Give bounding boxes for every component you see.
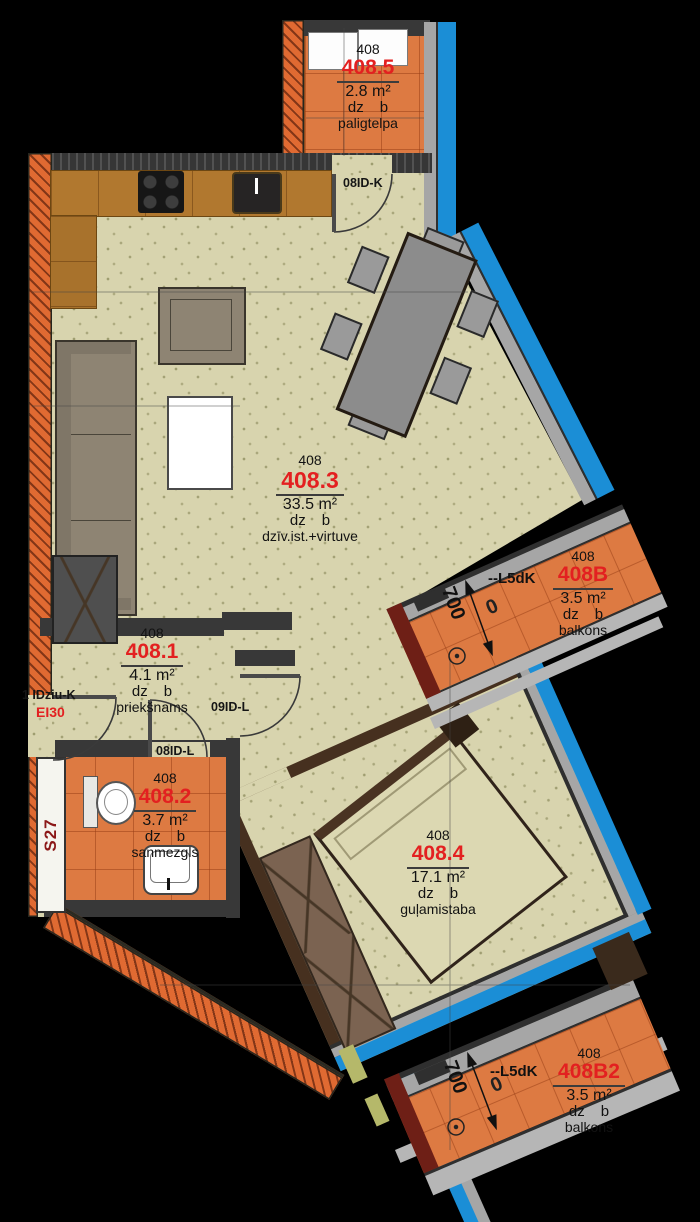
room-number: 408.4 xyxy=(407,843,470,869)
wall-jamb-upper xyxy=(222,612,292,630)
window-tag-408b2: --L5dK xyxy=(490,1063,538,1080)
unit-number: 408 xyxy=(375,828,501,843)
room-number: 408B2 xyxy=(553,1061,625,1087)
shaft-s27: S27 xyxy=(36,757,66,913)
storage-door-gap xyxy=(332,155,392,173)
room-area: 3.7 m² xyxy=(105,812,225,829)
room-label-408-5: 408 408.5 2.8 m² dzb paligtelpa xyxy=(310,42,426,131)
room-area: 17.1 m² xyxy=(375,869,501,886)
room-number: 408.3 xyxy=(276,468,344,496)
bathroom-sink-tap xyxy=(167,878,170,890)
door-label-08id-l: 08ID-L xyxy=(156,744,194,758)
kitchen-counter-left xyxy=(50,215,97,309)
armchair-seat xyxy=(170,299,232,351)
room-number: 408B xyxy=(553,564,613,590)
bathroom-wall-right xyxy=(226,738,240,918)
room-area: 3.5 m² xyxy=(535,1087,643,1104)
room-number: 408.2 xyxy=(134,786,197,812)
glazing-band-top-right xyxy=(424,22,456,244)
room-name: balkons xyxy=(535,623,631,638)
kitchen-sink-tap xyxy=(255,178,258,194)
room-label-408b2: 408 408B2 3.5 m² dzb balkons xyxy=(535,1046,643,1135)
room-label-408-3: 408 408.3 33.5 m² dzb dzīv.ist.+virtuve xyxy=(240,453,380,545)
unit-number: 408 xyxy=(310,42,426,57)
unit-number: 408 xyxy=(535,1046,643,1061)
room-name: priekšnams xyxy=(92,700,212,715)
room-tenure: dzb xyxy=(105,829,225,845)
wall-jamb-lower xyxy=(235,650,295,666)
room-area: 4.1 m² xyxy=(92,667,212,684)
room-name: balkons xyxy=(535,1120,643,1135)
room-tenure: dzb xyxy=(240,513,380,529)
room-label-408-1: 408 408.1 4.1 m² dzb priekšnams xyxy=(92,626,212,715)
room-name: guļamistaba xyxy=(375,902,501,917)
armchair xyxy=(158,287,246,365)
coffee-table xyxy=(167,396,233,490)
room-label-408-4: 408 408.4 17.1 m² dzb guļamistaba xyxy=(375,828,501,917)
unit-number: 408 xyxy=(240,453,380,468)
room-number: 408.5 xyxy=(337,57,400,83)
sofa-armrest-top xyxy=(57,342,131,354)
door-label-entry: 1 IDziu-K xyxy=(22,688,75,702)
wall-left-exterior xyxy=(28,153,52,765)
room-area: 2.8 m² xyxy=(310,83,426,100)
storage-wall-left xyxy=(282,20,304,158)
room-tenure: dzb xyxy=(375,886,501,902)
room-label-408b: 408 408B 3.5 m² dzb balkons xyxy=(535,549,631,638)
floor-plan: S27 0 0 xyxy=(0,0,700,1222)
sofa-cushion-line xyxy=(71,520,131,521)
unit-number: 408 xyxy=(105,771,225,786)
room-name: paligtelpa xyxy=(310,116,426,131)
room-name: dzīv.ist.+virtuve xyxy=(240,529,380,544)
kitchen-counter-top xyxy=(50,170,332,217)
room-tenure: dzb xyxy=(92,684,212,700)
unit-number: 408 xyxy=(535,549,631,564)
bathroom-wall-top xyxy=(55,740,240,757)
room-name: sanmezgls xyxy=(105,845,225,860)
room-area: 3.5 m² xyxy=(535,590,631,607)
unit-number: 408 xyxy=(92,626,212,641)
shaft-label: S27 xyxy=(41,818,61,851)
window-tag-408b: --L5dK xyxy=(488,570,536,587)
room-tenure: dzb xyxy=(535,607,631,623)
kitchen-sink xyxy=(232,172,282,214)
door-label-08id-k: 08ID-K xyxy=(343,176,383,190)
door-label-entry-fire-rating: EI30 xyxy=(36,704,65,720)
room-number: 408.1 xyxy=(121,641,184,667)
room-tenure: dzb xyxy=(535,1104,643,1120)
room-area: 33.5 m² xyxy=(240,496,380,513)
room-tenure: dzb xyxy=(310,100,426,116)
door-label-09id-l: 09ID-L xyxy=(211,700,249,714)
room-label-408-2: 408 408.2 3.7 m² dzb sanmezgls xyxy=(105,771,225,860)
sofa-cushion-line xyxy=(71,434,131,435)
facade-block-yellow-2 xyxy=(365,1093,390,1126)
glazing-glass xyxy=(438,22,456,244)
stove xyxy=(138,171,184,213)
